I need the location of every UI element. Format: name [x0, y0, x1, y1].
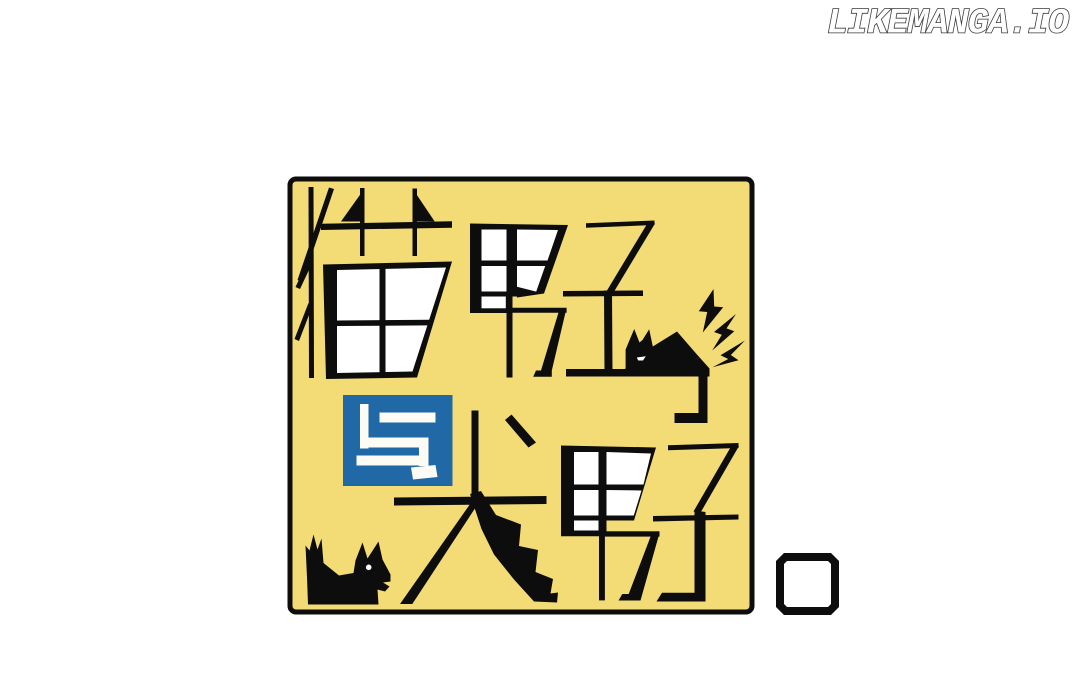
svg-text:LIKEMANGA.IO: LIKEMANGA.IO	[827, 4, 1069, 44]
